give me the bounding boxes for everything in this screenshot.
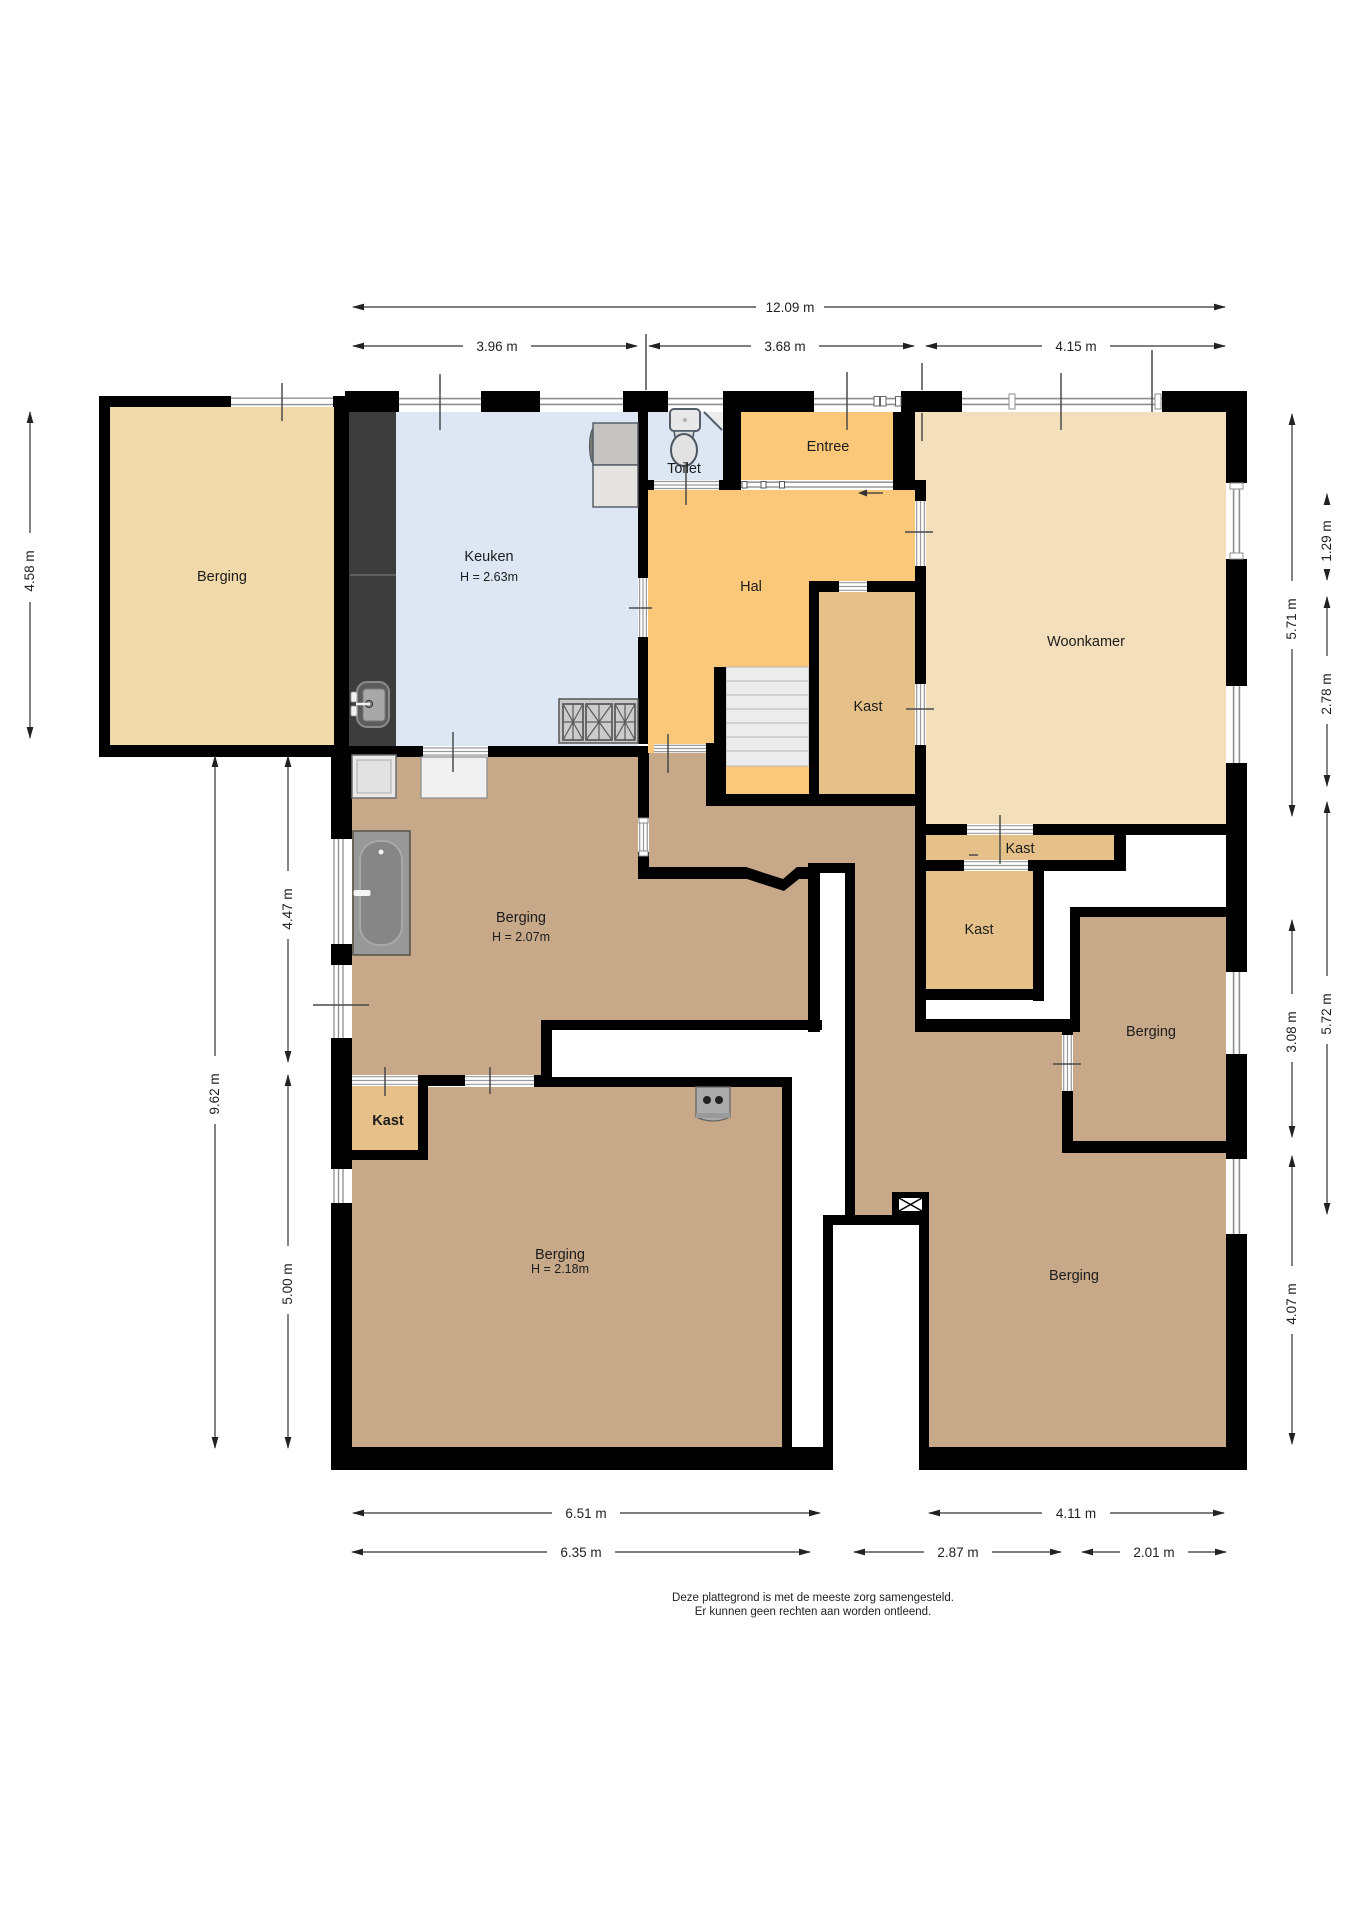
svg-text:4.58 m: 4.58 m — [22, 550, 37, 591]
svg-text:6.35 m: 6.35 m — [560, 1545, 601, 1560]
svg-text:Kast: Kast — [1005, 841, 1034, 857]
svg-text:Kast: Kast — [853, 699, 882, 715]
svg-text:Kast: Kast — [964, 922, 993, 938]
svg-text:H = 2.63m: H = 2.63m — [460, 570, 518, 584]
svg-text:Berging: Berging — [1049, 1268, 1099, 1284]
svg-text:5.71 m: 5.71 m — [1284, 598, 1299, 639]
svg-text:Berging: Berging — [496, 910, 546, 926]
svg-text:5.72 m: 5.72 m — [1319, 993, 1334, 1034]
svg-text:Deze plattegrond is met de mee: Deze plattegrond is met de meeste zorg s… — [672, 1592, 954, 1604]
svg-text:H = 2.07m: H = 2.07m — [492, 930, 550, 944]
svg-text:Keuken: Keuken — [464, 549, 513, 565]
svg-text:4.11 m: 4.11 m — [1056, 1506, 1096, 1521]
svg-text:Hal: Hal — [740, 579, 762, 595]
svg-text:Toilet: Toilet — [667, 461, 701, 477]
svg-text:3.08 m: 3.08 m — [1284, 1011, 1299, 1052]
svg-text:6.51 m: 6.51 m — [565, 1506, 606, 1521]
svg-text:3.68 m: 3.68 m — [764, 339, 805, 354]
svg-text:Berging: Berging — [535, 1247, 585, 1263]
svg-text:5.00 m: 5.00 m — [280, 1263, 295, 1304]
svg-text:Er kunnen geen rechten aan wor: Er kunnen geen rechten aan worden ontlee… — [695, 1606, 932, 1618]
svg-text:3.96 m: 3.96 m — [476, 339, 517, 354]
svg-text:Entree: Entree — [807, 439, 850, 455]
svg-text:Berging: Berging — [1126, 1024, 1176, 1040]
svg-text:1.29 m: 1.29 m — [1319, 520, 1334, 561]
svg-text:Berging: Berging — [197, 569, 247, 585]
svg-text:4.07 m: 4.07 m — [1284, 1283, 1299, 1324]
svg-text:4.15 m: 4.15 m — [1055, 339, 1096, 354]
svg-text:2.87 m: 2.87 m — [937, 1545, 978, 1560]
svg-text:12.09 m: 12.09 m — [766, 300, 815, 315]
svg-text:2.01 m: 2.01 m — [1133, 1545, 1174, 1560]
svg-text:Woonkamer: Woonkamer — [1047, 634, 1125, 650]
svg-text:4.47 m: 4.47 m — [280, 888, 295, 929]
svg-text:9.62 m: 9.62 m — [207, 1073, 222, 1114]
svg-text:H = 2.18m: H = 2.18m — [531, 1262, 589, 1276]
svg-text:2.78 m: 2.78 m — [1319, 673, 1334, 714]
svg-text:Kast: Kast — [372, 1113, 404, 1129]
